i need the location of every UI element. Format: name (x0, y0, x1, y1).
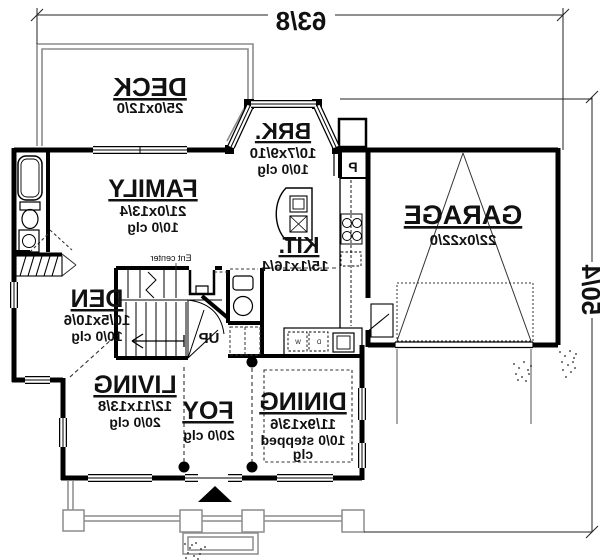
den-ceiling: 10/0 clg (71, 328, 122, 344)
garage-door (395, 342, 533, 348)
deck-label: DECK (113, 72, 187, 102)
den-closet (16, 256, 62, 276)
living-ceiling: 20/0 clg (109, 414, 160, 430)
deck-size: 25/0x12/0 (117, 100, 184, 117)
bathroom-fixtures (18, 156, 42, 252)
family-label: FAMILY (108, 175, 198, 203)
pantry-label: P (348, 159, 357, 175)
driveway (397, 349, 531, 424)
family-size: 21/0x13/4 (119, 203, 186, 220)
den-size: 10/5x10/6 (64, 312, 131, 329)
brk-size: 10/7x9/10 (250, 145, 317, 162)
dim-width-label: 63/8 (276, 6, 327, 36)
floor-plan-canvas: 63/8 50/4 DECK 25/0x12/0 BRK. 10/7x9/10 … (0, 0, 600, 560)
dining-label: DINING (259, 388, 347, 416)
living-size: 12/11x13/8 (98, 398, 172, 415)
living-label: LIVING (93, 371, 176, 399)
up-label: UP (199, 330, 220, 347)
garage-size: 22/0x22/0 (430, 232, 497, 249)
dryer-label: D (316, 340, 321, 346)
powder-room-fixtures (233, 276, 253, 316)
den-label: DEN (71, 285, 124, 313)
chimney (339, 119, 366, 147)
floor-plan-drawing: 63/8 50/4 DECK 25/0x12/0 BRK. 10/7x9/10 … (0, 0, 600, 560)
foyer-closet (230, 327, 260, 355)
garage-entry (367, 304, 393, 337)
entertainment-center-niche (190, 270, 214, 294)
washer-label: W (295, 340, 301, 346)
dining-ceiling-2: clg (293, 446, 313, 462)
room-labels: 63/8 50/4 DECK 25/0x12/0 BRK. 10/7x9/10 … (64, 6, 600, 462)
dim-depth-label: 50/4 (576, 264, 600, 315)
kitchen-label: KIT. (279, 232, 320, 258)
front-door-marker (198, 486, 232, 502)
garage-label: GARAGE (404, 200, 523, 230)
foyer-ceiling: 20/0 clg (183, 427, 234, 443)
kitchen-size: 15/1x16/4 (261, 258, 328, 275)
ent-center-label: Ent center (150, 253, 191, 263)
brk-ceiling: 10/0 clg (257, 161, 308, 177)
foyer-label: FOY (182, 397, 234, 425)
brk-label: BRK. (255, 118, 311, 144)
dining-size: 11/9x13/6 (270, 416, 336, 433)
family-ceiling: 10/0 clg (127, 219, 178, 235)
